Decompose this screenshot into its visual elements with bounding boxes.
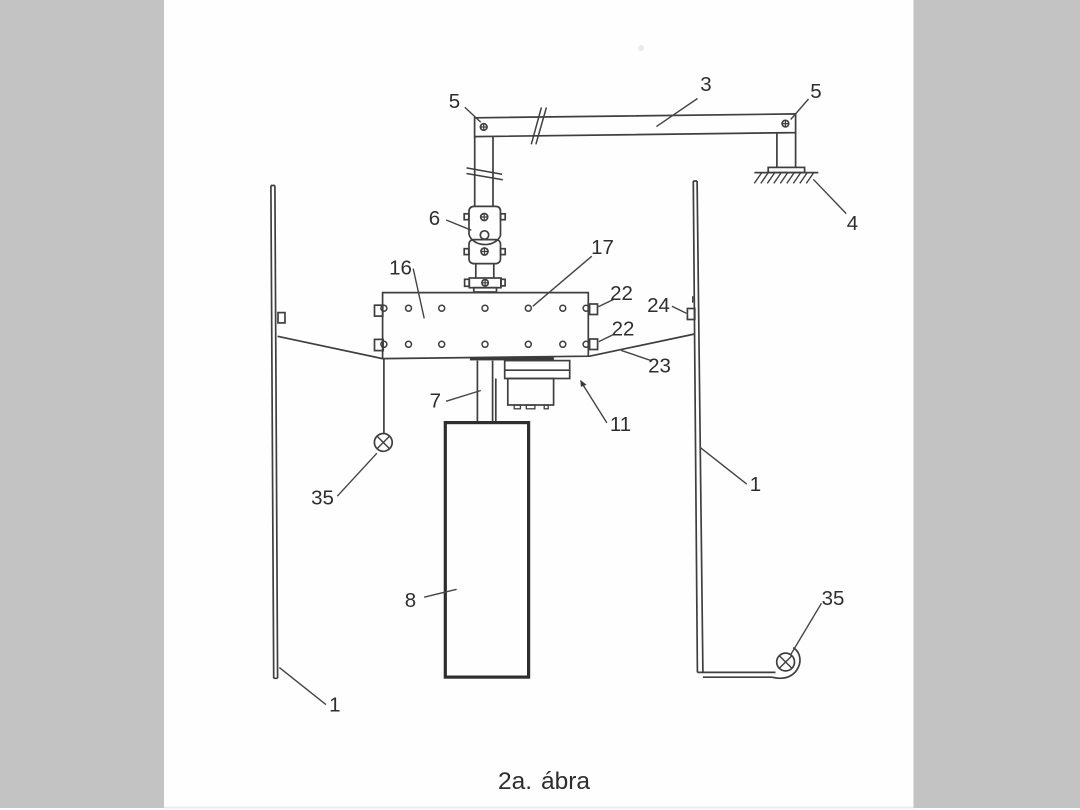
svg-text:8: 8 bbox=[405, 589, 416, 612]
svg-text:17: 17 bbox=[591, 236, 614, 259]
svg-text:7: 7 bbox=[430, 390, 441, 413]
svg-text:24: 24 bbox=[647, 294, 670, 317]
svg-text:35: 35 bbox=[822, 587, 845, 610]
svg-text:1: 1 bbox=[329, 694, 340, 717]
svg-text:22: 22 bbox=[612, 318, 635, 341]
svg-text:5: 5 bbox=[449, 90, 460, 113]
svg-text:11: 11 bbox=[610, 413, 631, 436]
svg-text:1: 1 bbox=[750, 473, 761, 496]
svg-text:2a.ábra: 2a.ábra bbox=[498, 768, 590, 795]
svg-text:22: 22 bbox=[610, 282, 633, 305]
svg-text:3: 3 bbox=[700, 73, 711, 96]
svg-text:4: 4 bbox=[847, 212, 858, 235]
svg-text:23: 23 bbox=[648, 355, 671, 378]
svg-text:16: 16 bbox=[389, 257, 412, 280]
svg-text:35: 35 bbox=[311, 487, 334, 510]
svg-text:5: 5 bbox=[810, 80, 821, 103]
svg-text:6: 6 bbox=[429, 207, 440, 230]
